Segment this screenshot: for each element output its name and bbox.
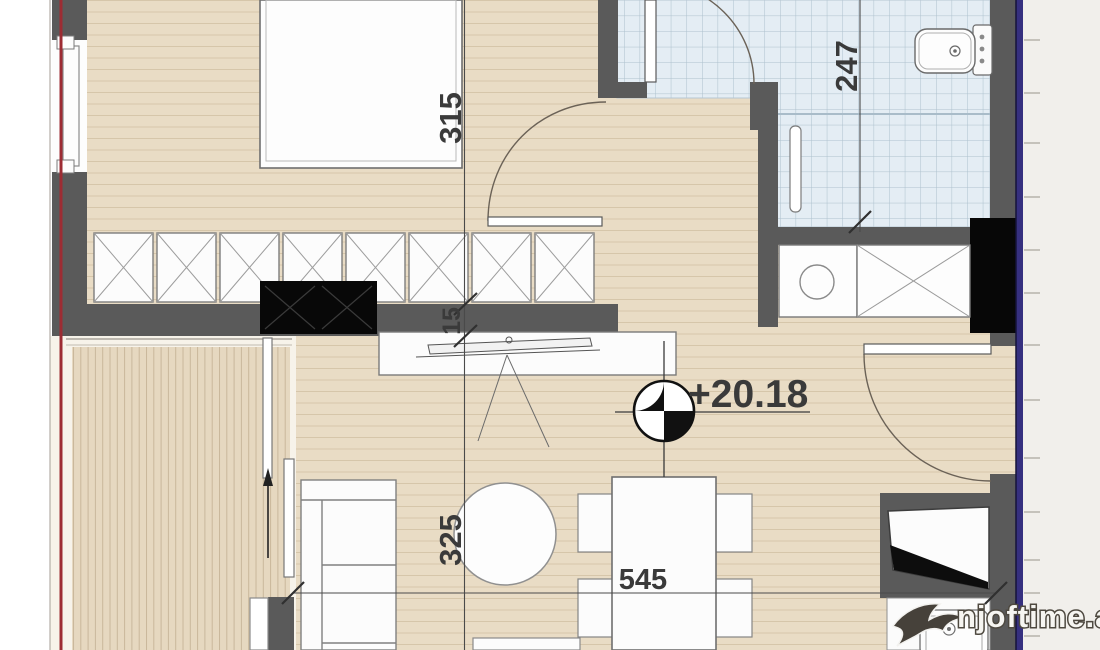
utility-units <box>779 245 970 317</box>
balcony-glazing-end <box>250 598 268 650</box>
round-rug <box>454 483 556 585</box>
sofa <box>301 480 396 650</box>
wardrobe-box <box>535 233 594 302</box>
dimension-label-wall-thickness: 15 <box>438 307 466 335</box>
dining-chair <box>578 494 616 552</box>
bedroom-window <box>52 36 87 173</box>
wardrobe-box <box>409 233 468 302</box>
sliding-panel-fixed <box>263 338 272 478</box>
survey-level-icon <box>634 381 694 441</box>
dimension-label-living-width: 545 <box>619 564 667 596</box>
dimension-label-living-depth: 325 <box>433 514 468 566</box>
radiator <box>790 126 801 212</box>
toilet-icon <box>915 25 992 75</box>
tv-cabinet-black <box>260 281 377 334</box>
bedroom-east-wall <box>598 0 618 98</box>
purple-border-line <box>1016 0 1023 650</box>
right-margin <box>1023 0 1100 650</box>
entry-door-leaf <box>864 344 991 354</box>
washing-machine-icon <box>779 245 857 317</box>
shaft-black-block <box>970 218 1021 333</box>
coffee-table <box>473 638 580 650</box>
window-frame <box>63 46 79 166</box>
dimension-label-bathroom-depth: 247 <box>829 40 864 92</box>
dining-chair <box>714 494 752 552</box>
level-value: +20.18 <box>688 373 808 416</box>
dining-chair <box>714 579 752 637</box>
dimension-label-bedroom-depth: 315 <box>433 92 468 144</box>
wardrobe-box <box>157 233 216 302</box>
floor-plan-drawing: 315 247 15 325 545 +20.18 <box>0 0 1100 650</box>
hall-bathroom-wall <box>758 115 778 327</box>
wardrobe-box <box>472 233 531 302</box>
bathroom-door-stub <box>618 82 647 98</box>
balcony-end-wall <box>268 597 294 650</box>
right-wall-upper <box>990 0 1016 218</box>
bathroom-south-wall <box>764 227 970 245</box>
sliding-panel-moving <box>284 459 294 577</box>
bathroom-door-leaf <box>645 0 656 82</box>
bed <box>260 0 462 168</box>
dining-chair <box>578 579 616 637</box>
bedroom-door-leaf <box>488 217 602 226</box>
floor-plan-page: 315 247 15 325 545 +20.18 <box>0 0 1100 650</box>
wardrobe-box <box>94 233 153 302</box>
watermark-text: njoftime.al <box>957 599 1100 634</box>
